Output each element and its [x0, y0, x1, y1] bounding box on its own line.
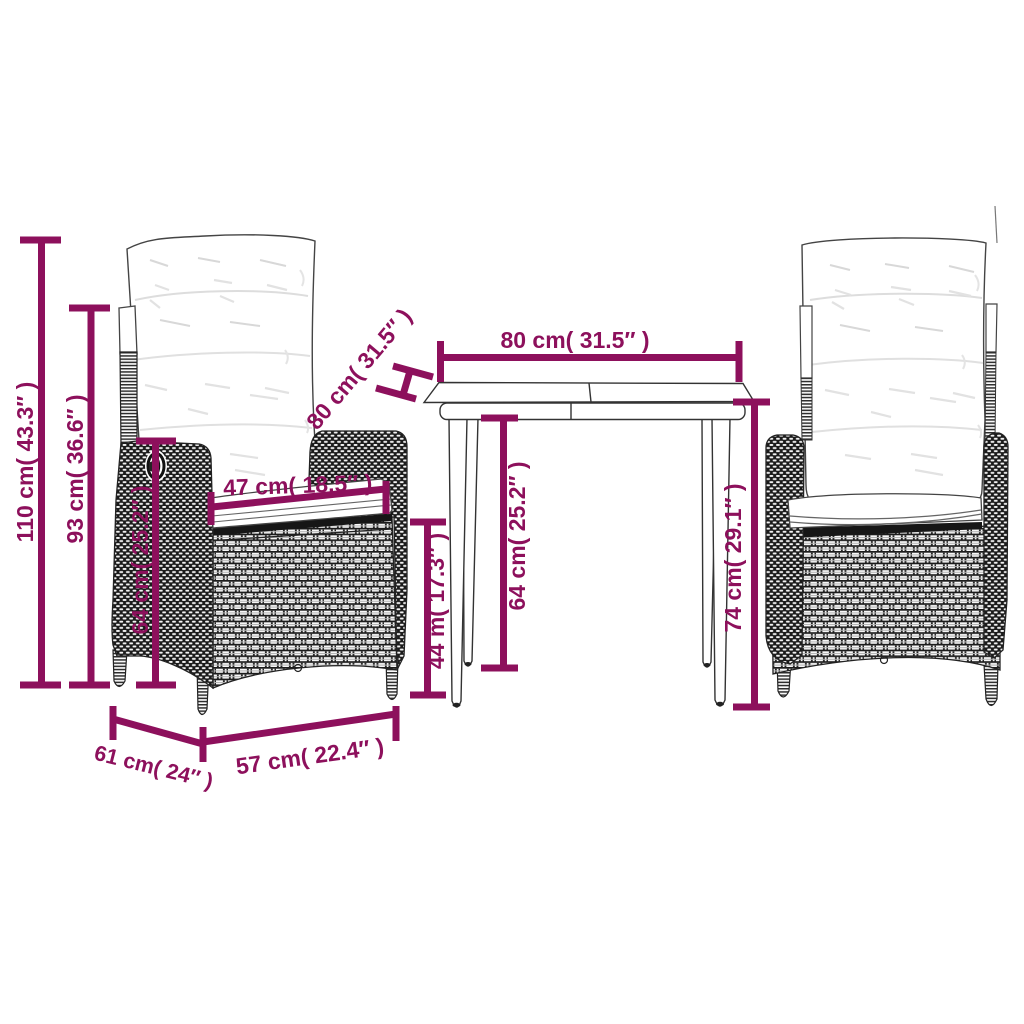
- svg-text:80 cm( 31.5″ ): 80 cm( 31.5″ ): [500, 327, 649, 353]
- svg-text:47 cm( 18.5″ ): 47 cm( 18.5″ ): [223, 469, 373, 500]
- svg-text:74 cm( 29.1″ ): 74 cm( 29.1″ ): [720, 483, 746, 632]
- svg-text:110 cm( 43.3″ ): 110 cm( 43.3″ ): [12, 382, 38, 543]
- svg-text:93 cm( 36.6″ ): 93 cm( 36.6″ ): [62, 394, 88, 543]
- svg-text:64 cm( 25.2″ ): 64 cm( 25.2″ ): [504, 461, 530, 610]
- svg-text:64 cm( 25.2″ ): 64 cm( 25.2″ ): [127, 485, 153, 634]
- svg-text:44 m( 17.3″ ): 44 m( 17.3″ ): [423, 533, 449, 669]
